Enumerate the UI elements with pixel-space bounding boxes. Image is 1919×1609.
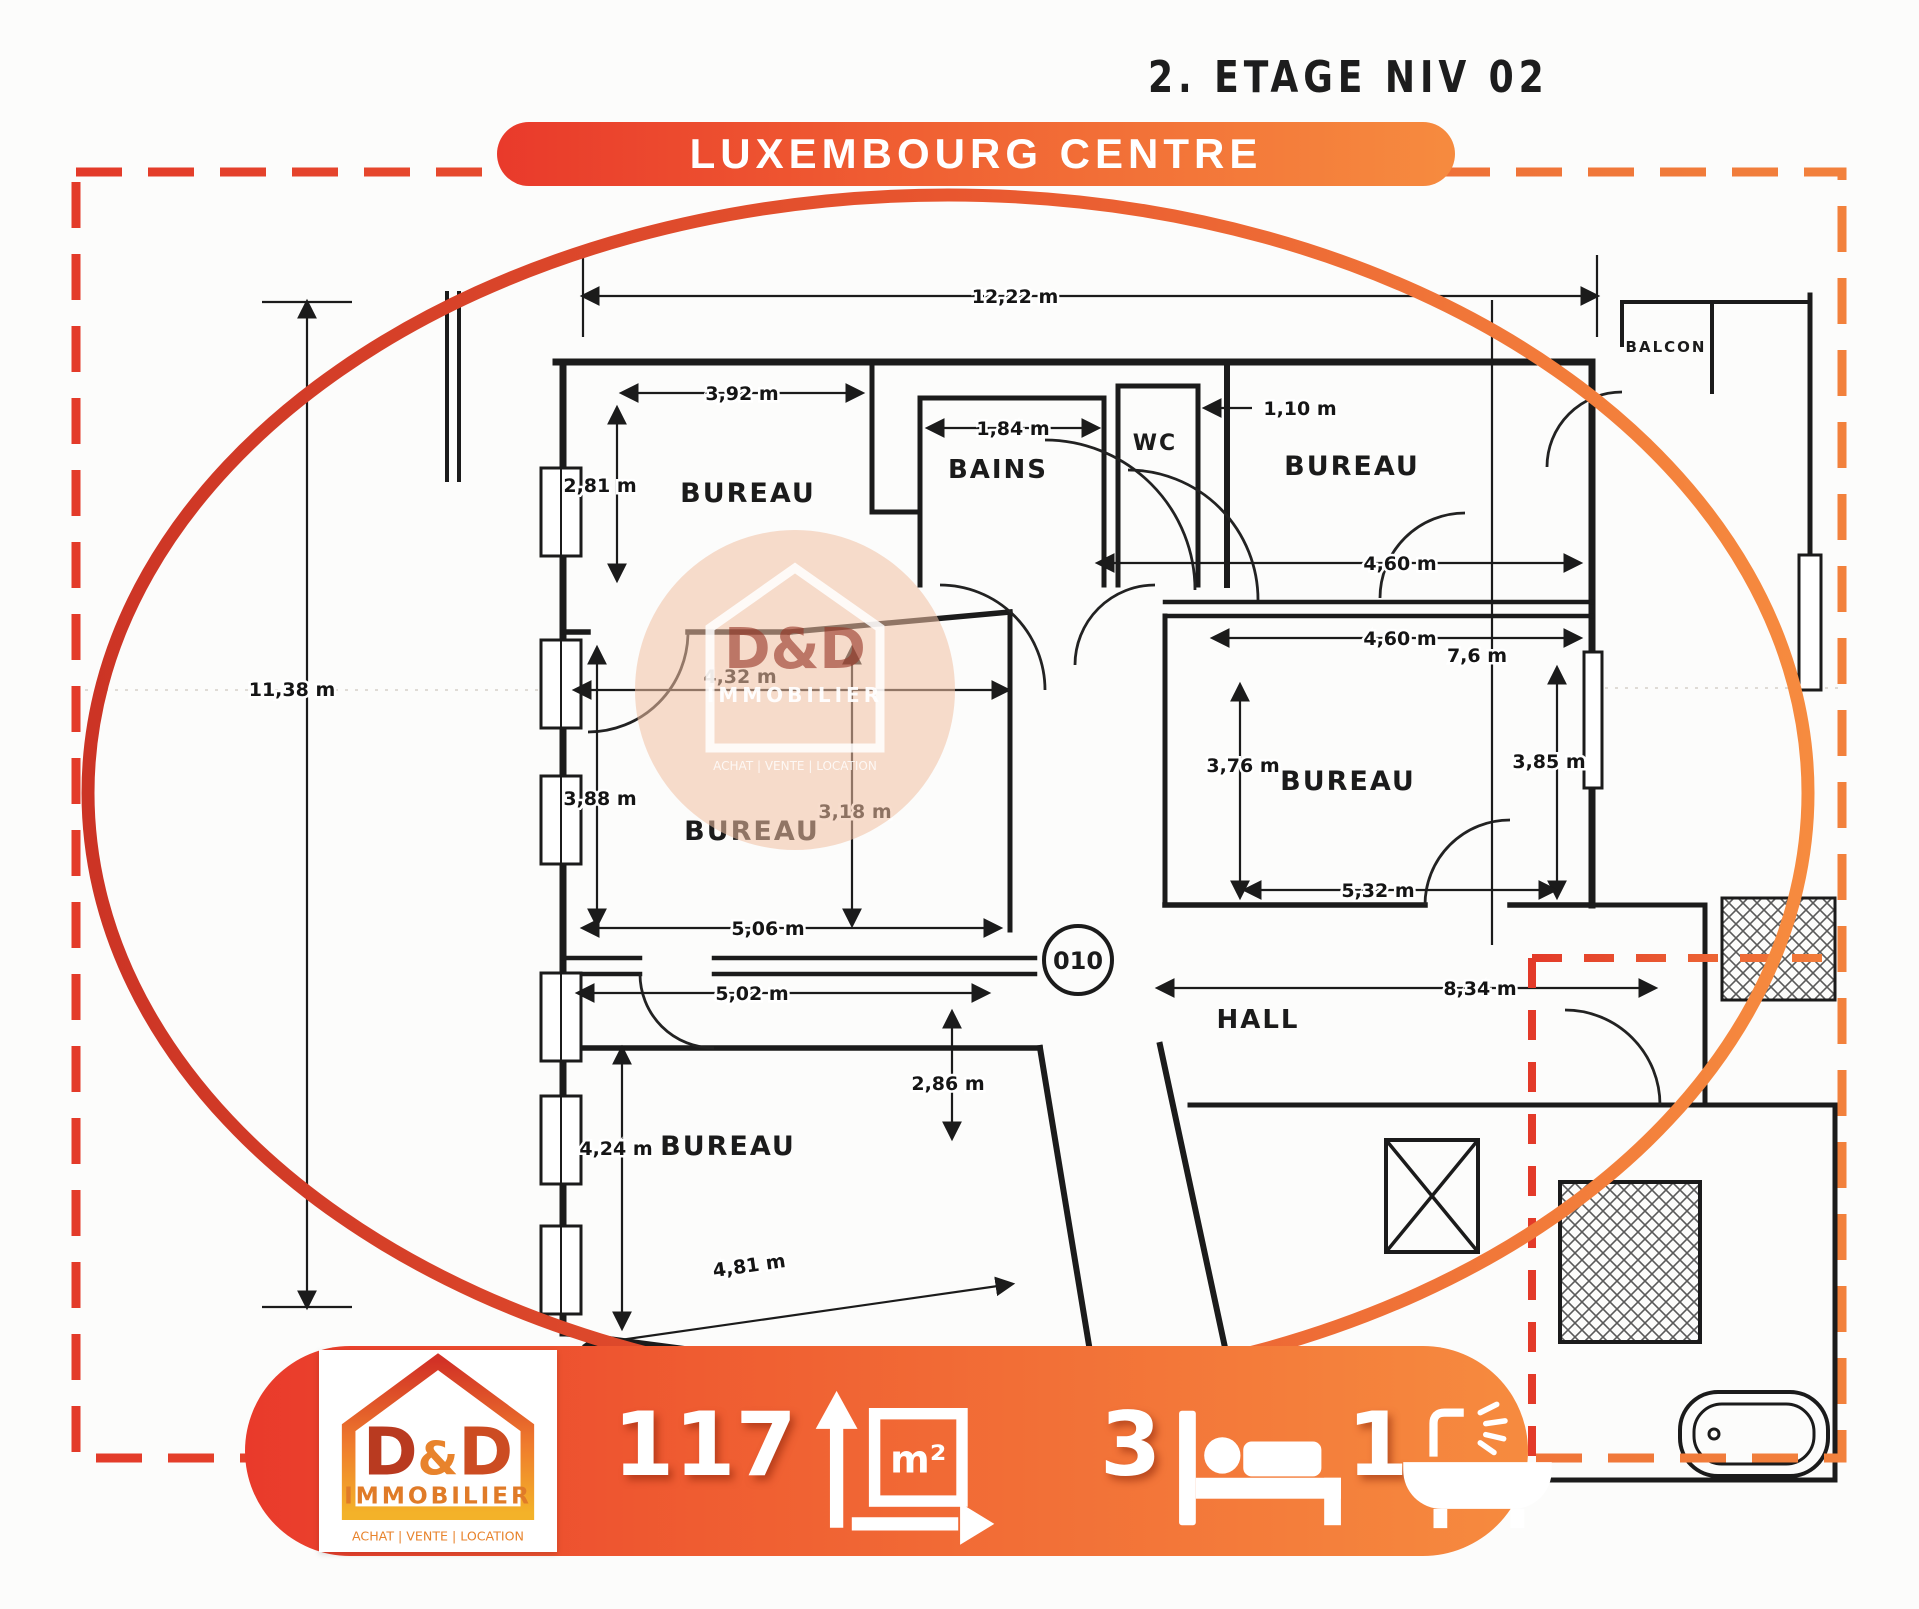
watermark-brand: D&D <box>724 617 866 682</box>
svg-text:D&D: D&D <box>363 1413 513 1490</box>
brand-logo-card: D&D IMMOBILIER ACHAT | VENTE | LOCATION <box>319 1350 557 1552</box>
watermark-subtitle: IMMOBILIER <box>707 683 883 707</box>
logo-letter-d2: D <box>458 1413 513 1490</box>
room-label-bains: BAINS <box>948 455 1048 485</box>
dimension-label: 5,32 m <box>1341 880 1414 902</box>
dimension-label: 12,22 m <box>972 286 1059 308</box>
area-unit-label: m² <box>890 1438 946 1482</box>
room-label-wc: WC <box>1133 431 1177 456</box>
dimension-label: 4,24 m <box>579 1138 652 1160</box>
dimension-label: 1,10 m <box>1263 398 1336 420</box>
brand-logo: D&D IMMOBILIER ACHAT | VENTE | LOCATION <box>319 1350 557 1552</box>
dimension-label: 2,81 m <box>563 475 636 497</box>
floor-title: 2. ETAGE NIV 02 <box>1148 52 1549 103</box>
bed-icon <box>1175 1408 1345 1528</box>
room-label-bureau-bottom: BUREAU <box>660 1131 796 1162</box>
room-label-bureau-top-left: BUREAU <box>680 478 816 509</box>
dimension-label: 4,60 m <box>1363 628 1436 650</box>
location-banner: LUXEMBOURG CENTRE <box>497 122 1455 186</box>
bedrooms-stat: 3 <box>1100 1401 1161 1489</box>
area-stat: 117 <box>613 1401 797 1489</box>
room-label-bureau-right: BUREAU <box>1280 766 1416 797</box>
dimension-label: 5,02 m <box>715 983 788 1005</box>
dimension-label: 5,06 m <box>731 918 804 940</box>
dimension-label: 3,88 m <box>563 788 636 810</box>
dimension-label: 3,76 m <box>1206 755 1279 777</box>
logo-subtitle: IMMOBILIER <box>344 1482 532 1509</box>
dimension-label: 7,6 m <box>1447 645 1507 667</box>
stairwell-hatch <box>1560 1182 1700 1342</box>
dimension-label: 1,84 m <box>976 418 1049 440</box>
dimension-label: 3,85 m <box>1512 751 1585 773</box>
highlight-ellipse <box>88 195 1808 1391</box>
logo-ampersand: & <box>418 1431 459 1485</box>
dimension-label: 8,34 m <box>1443 978 1516 1000</box>
dimension-label: 4,81 m <box>711 1250 787 1282</box>
bathtub-icon <box>1395 1396 1560 1531</box>
unit-badge-label: 010 <box>1053 947 1103 975</box>
footer-bar: D&D IMMOBILIER ACHAT | VENTE | LOCATION … <box>245 1346 1528 1556</box>
dimension-label: 2,86 m <box>911 1073 984 1095</box>
dimension-label: 11,38 m <box>249 679 336 701</box>
logo-letter-d1: D <box>363 1413 418 1490</box>
location-banner-label: LUXEMBOURG CENTRE <box>690 130 1263 178</box>
room-label-hall: HALL <box>1216 1005 1299 1035</box>
logo-tagline: ACHAT | VENTE | LOCATION <box>352 1528 524 1543</box>
listing-image: A <box>0 0 1919 1609</box>
watermark-logo: D&D IMMOBILIER ACHAT | VENTE | LOCATION <box>635 530 955 850</box>
unit-badge: 010 <box>1044 926 1112 994</box>
area-m2-icon: m² <box>810 1385 1000 1545</box>
dimension-label: 4,60 m <box>1363 553 1436 575</box>
dimension-label: 3,92 m <box>705 383 778 405</box>
room-label-balcon: BALCON <box>1626 338 1707 356</box>
watermark-tagline: ACHAT | VENTE | LOCATION <box>713 759 877 773</box>
room-label-bureau-top-right: BUREAU <box>1284 451 1420 482</box>
